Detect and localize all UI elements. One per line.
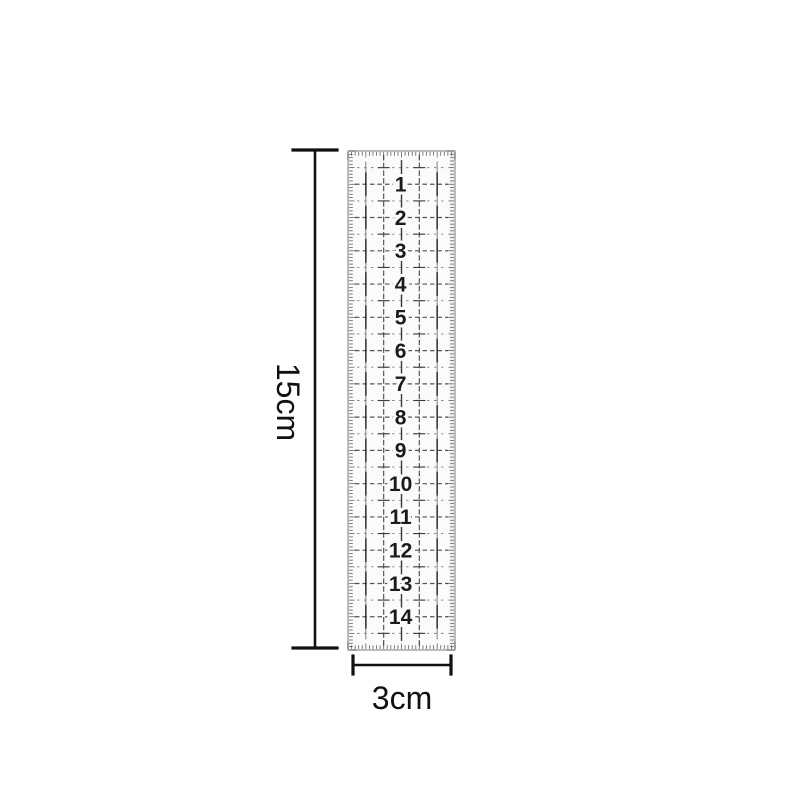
width-dimension-line	[353, 656, 451, 674]
ruler-number: 4	[395, 273, 407, 296]
ruler-number: 8	[395, 406, 407, 429]
ruler-number: 14	[389, 606, 413, 629]
ruler-number: 6	[395, 340, 407, 363]
width-dimension-label: 3cm	[347, 680, 457, 717]
ruler-number: 1	[395, 174, 407, 197]
ruler-number: 10	[389, 473, 412, 496]
ruler-number: 12	[389, 540, 412, 563]
ruler-number: 3	[395, 240, 407, 263]
product-photo: 1234567891011121314 15cm 3cm	[0, 0, 800, 800]
ruler-number: 13	[389, 573, 412, 596]
ruler-number: 5	[395, 307, 407, 330]
ruler-number: 9	[395, 440, 407, 463]
ruler-number: 7	[395, 373, 407, 396]
ruler-number: 11	[390, 506, 413, 529]
ruler-number: 2	[395, 207, 407, 230]
length-dimension-label: 15cm	[271, 352, 305, 452]
